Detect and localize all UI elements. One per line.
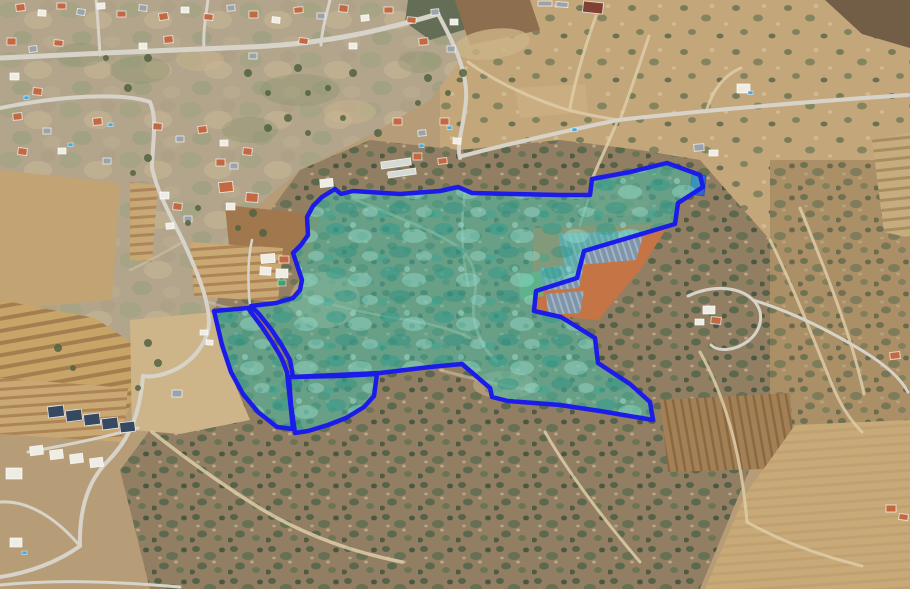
satellite-map[interactable]	[0, 0, 910, 589]
light-haze	[0, 0, 910, 589]
